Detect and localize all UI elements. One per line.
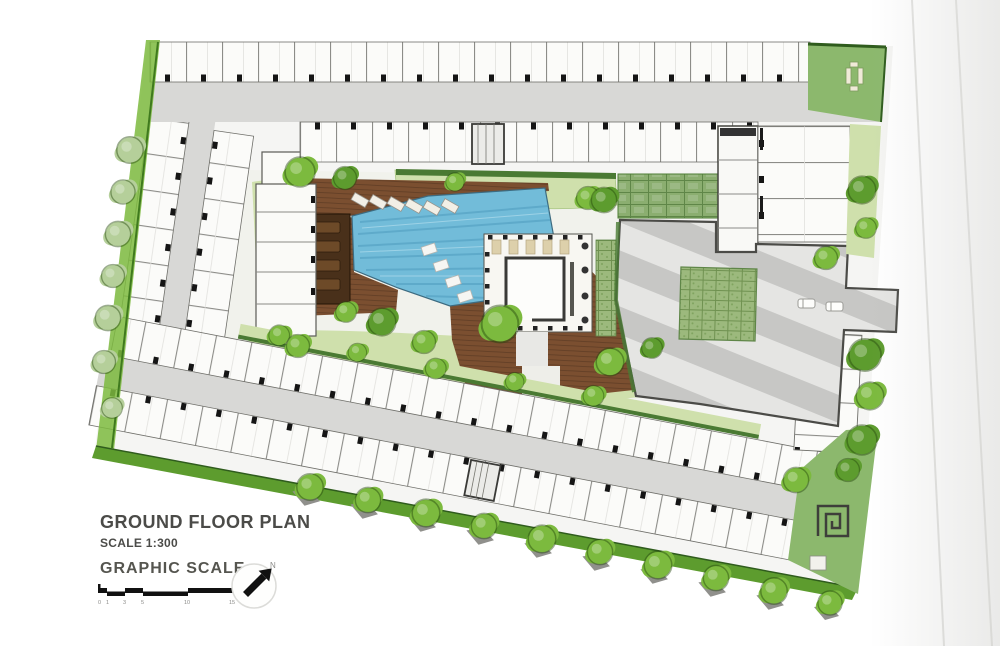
svg-text:5: 5 bbox=[141, 600, 144, 606]
stair-core bbox=[464, 460, 500, 501]
page-fold-lines bbox=[912, 0, 992, 646]
north-label: N bbox=[270, 561, 276, 570]
scale-label: SCALE 1:300 bbox=[100, 536, 311, 550]
grass-paver-patch bbox=[679, 267, 757, 341]
stair-core bbox=[472, 124, 504, 164]
north-arrow: N bbox=[226, 554, 290, 618]
svg-text:10: 10 bbox=[184, 600, 190, 606]
top-right-units bbox=[718, 126, 850, 252]
ground-floor-plan-page: GROUND FLOOR PLAN SCALE 1:300 GRAPHIC SC… bbox=[0, 0, 1000, 646]
pergola-band bbox=[618, 174, 718, 218]
svg-text:3: 3 bbox=[123, 600, 126, 606]
clubhouse-hedge-band bbox=[596, 240, 616, 336]
svg-text:0: 0 bbox=[98, 600, 101, 606]
svg-text:1: 1 bbox=[106, 600, 109, 606]
page-title: GROUND FLOOR PLAN bbox=[100, 512, 311, 533]
